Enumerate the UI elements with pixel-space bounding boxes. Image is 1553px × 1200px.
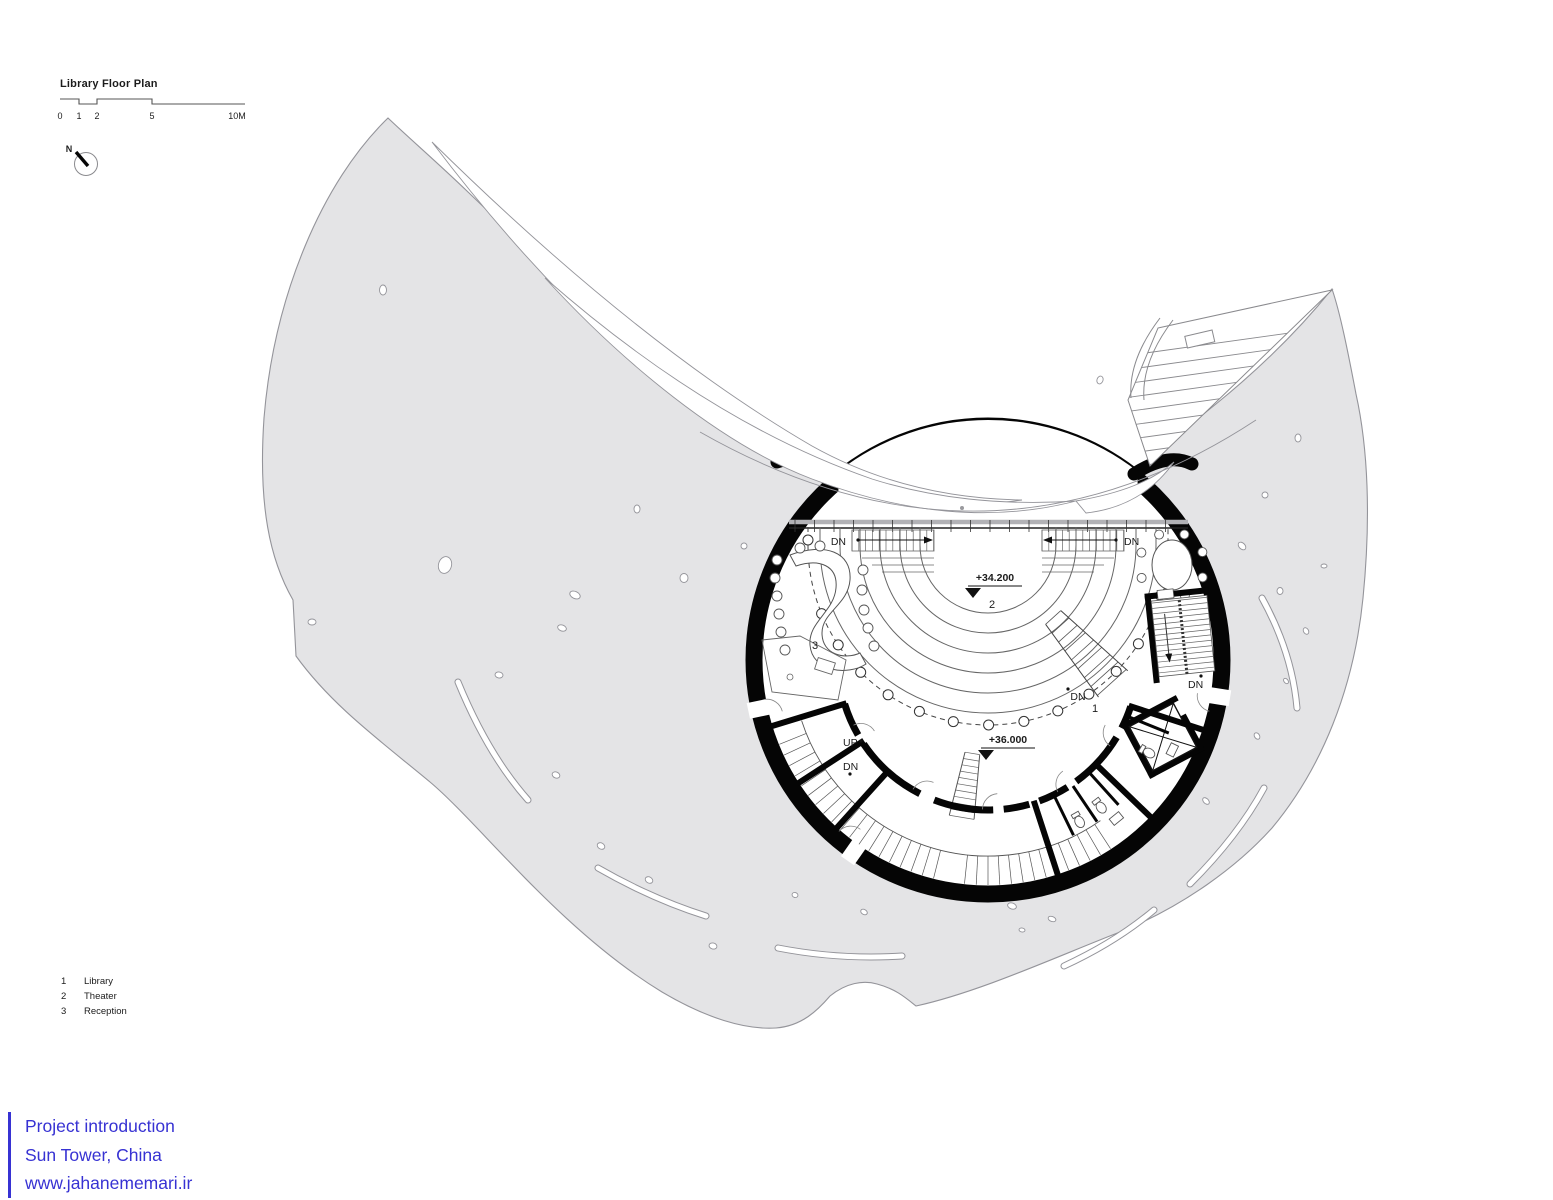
scale-tick-2: 2 <box>94 111 99 121</box>
north-arrow: N <box>66 144 98 176</box>
footer-accent-bar <box>8 1112 11 1198</box>
facade-opening <box>308 619 316 625</box>
theater-dn-left-label: DN <box>831 536 846 548</box>
facade-opening <box>680 574 688 583</box>
chair <box>1137 548 1146 557</box>
facade-opening <box>634 505 640 513</box>
column <box>948 717 958 727</box>
stool <box>776 627 786 637</box>
column <box>914 706 924 716</box>
footer-credit: Project introduction Sun Tower, China ww… <box>8 1112 192 1198</box>
theater-dn-right-label: DN <box>1124 536 1139 548</box>
legend-3-number: 3 <box>61 1006 66 1017</box>
stool <box>770 573 780 583</box>
footer-title-line: Sun Tower, China <box>25 1143 192 1168</box>
scale-tick-0: 0 <box>57 111 62 121</box>
footer-site-url: www.jahanememari.ir <box>25 1171 192 1196</box>
theater-level-label: +34.200 <box>976 572 1014 584</box>
facade-opening <box>1295 434 1301 442</box>
theater-aisle-dn-label: DN <box>1070 691 1085 703</box>
chair <box>1155 530 1164 539</box>
stool <box>774 609 784 619</box>
scale-tick-5: 5 <box>149 111 154 121</box>
scale-bar <box>60 99 245 104</box>
stool <box>859 605 869 615</box>
column <box>833 640 843 650</box>
chair <box>1180 530 1189 539</box>
legend-2-label: Theater <box>84 991 117 1002</box>
facade-opening <box>1262 492 1268 498</box>
column <box>856 667 866 677</box>
sheet-title: Library Floor Plan <box>60 78 158 90</box>
stool <box>772 591 782 601</box>
stool <box>772 555 782 565</box>
floor-plan-sheet: Library Floor Plan 0 1 2 5 10M N DN DN D… <box>0 0 1553 1200</box>
facade-opening <box>1277 588 1283 595</box>
stool <box>795 543 805 553</box>
stool <box>863 623 873 633</box>
legend: 1 Library 2 Theater 3 Reception <box>61 976 127 1017</box>
chair <box>1198 548 1207 557</box>
stool <box>857 585 867 595</box>
stool <box>869 641 879 651</box>
scale-bar-line <box>60 99 245 104</box>
facade-opening <box>380 285 387 295</box>
west-dn-label: DN <box>843 761 858 773</box>
scale-tick-1: 1 <box>76 111 81 121</box>
footer-project-line: Project introduction <box>25 1114 192 1139</box>
theater-number: 2 <box>989 599 995 611</box>
east-stair-dn-label: DN <box>1188 679 1203 691</box>
ring-door-gap <box>1207 687 1231 706</box>
stool <box>780 645 790 655</box>
scale-tick-10: 10M <box>228 111 246 121</box>
chair <box>1137 573 1146 582</box>
facade-opening <box>1096 375 1104 385</box>
stool <box>815 541 825 551</box>
library-level-label: +36.000 <box>989 734 1027 746</box>
column <box>1053 706 1063 716</box>
legend-2-number: 2 <box>61 991 66 1002</box>
north-label: N <box>66 144 73 154</box>
facade-opening <box>1019 928 1026 933</box>
stool <box>858 565 868 575</box>
legend-1-label: Library <box>84 976 113 987</box>
column <box>883 690 893 700</box>
facade-opening <box>1321 564 1327 568</box>
facade-opening <box>741 543 747 549</box>
column <box>1019 716 1029 726</box>
column <box>803 535 813 545</box>
legend-3-label: Reception <box>84 1006 127 1017</box>
library-number: 1 <box>1092 703 1098 715</box>
column <box>984 720 994 730</box>
legend-1-number: 1 <box>61 976 66 987</box>
west-up-label: UP <box>843 737 858 749</box>
chair <box>1198 573 1207 582</box>
reception-number: 3 <box>812 640 818 652</box>
column <box>1133 639 1143 649</box>
reading-table <box>1152 540 1192 590</box>
